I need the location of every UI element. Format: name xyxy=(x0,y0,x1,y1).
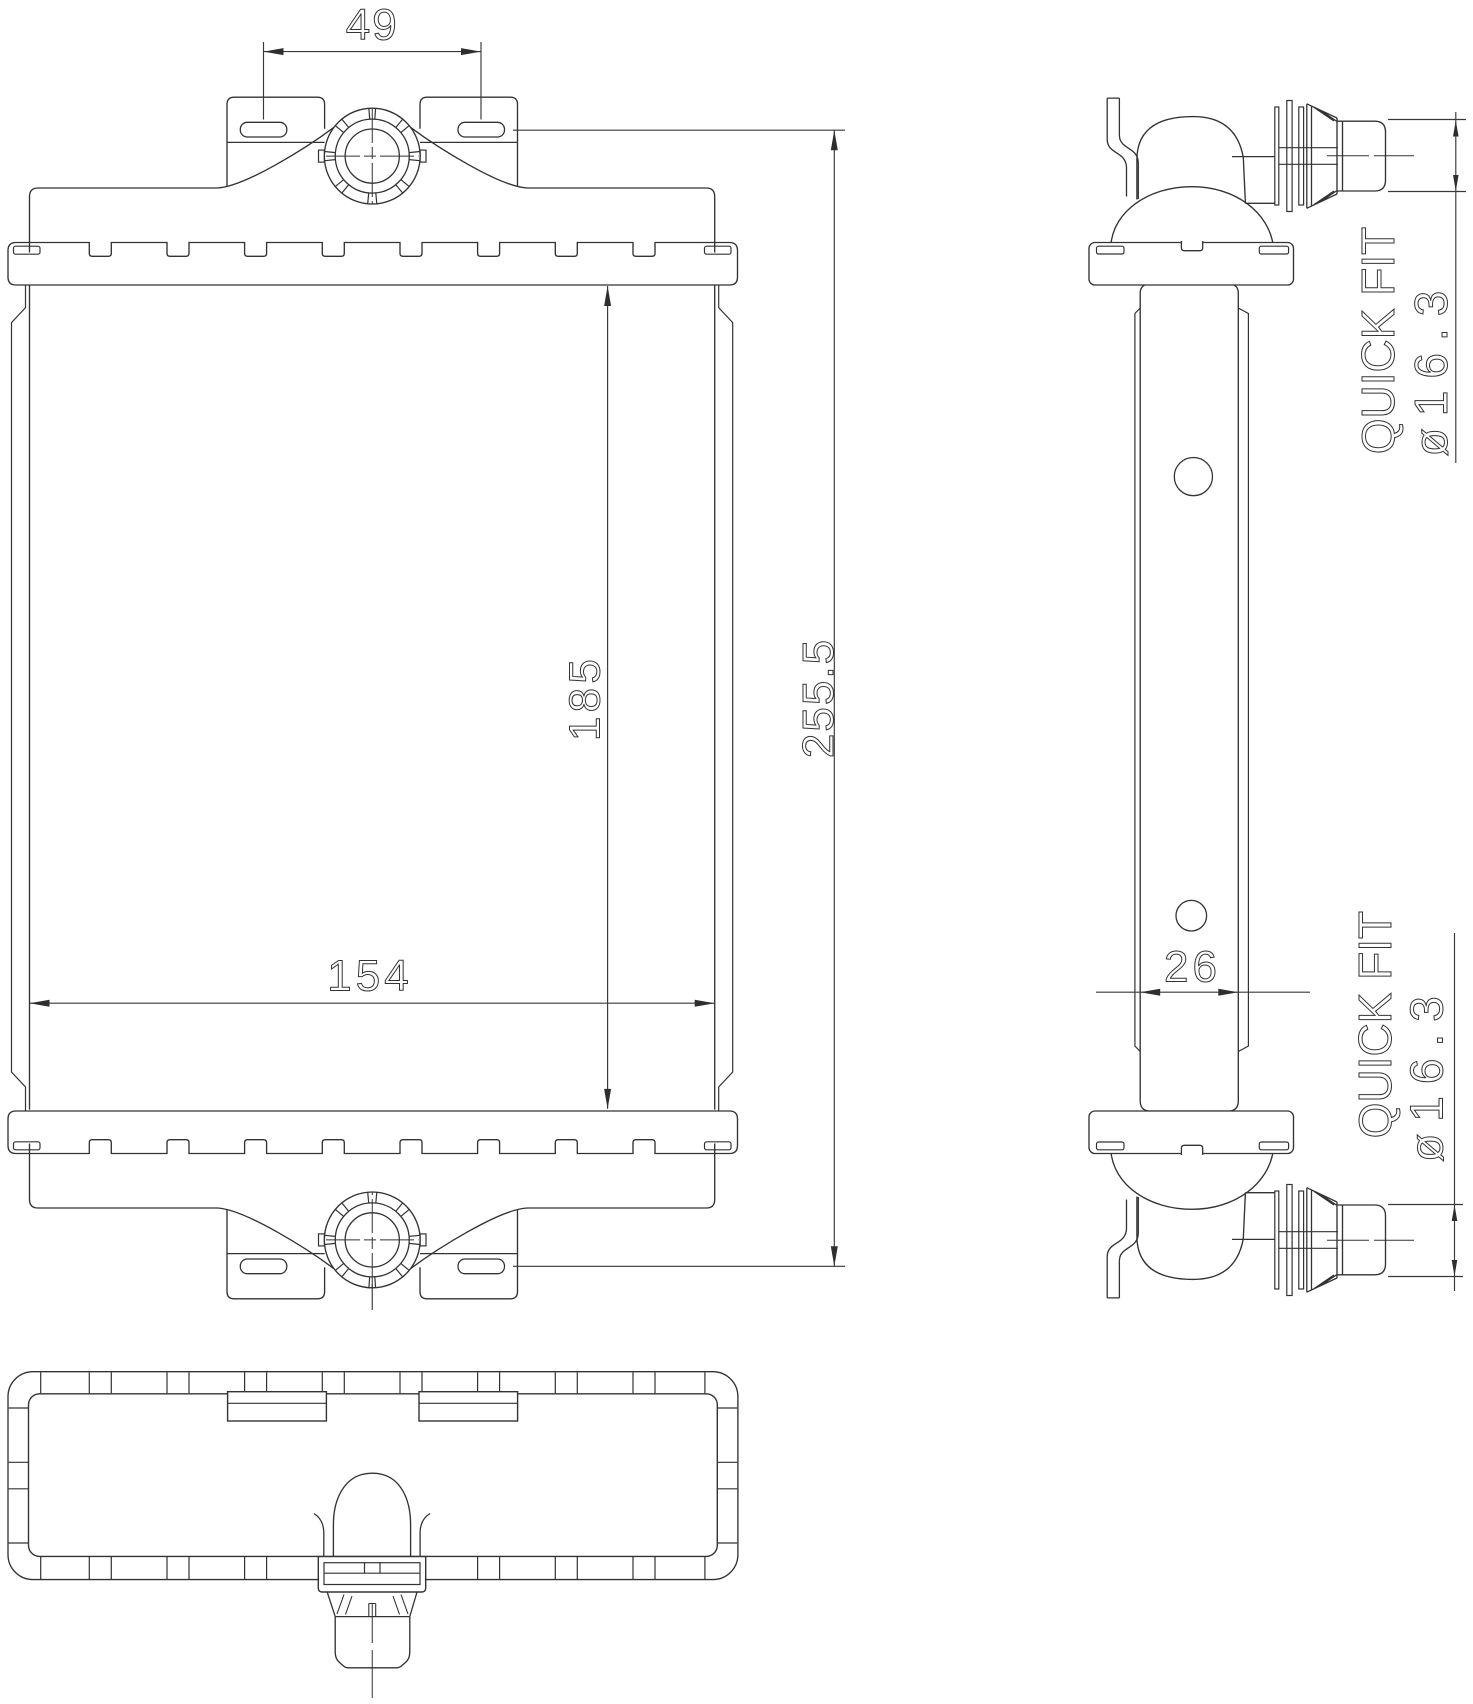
svg-text:QUICK FIT: QUICK FIT xyxy=(1352,227,1404,454)
svg-text:26: 26 xyxy=(1164,943,1221,992)
svg-text:QUICK FIT: QUICK FIT xyxy=(1349,911,1401,1138)
svg-text:49: 49 xyxy=(346,1,399,50)
svg-text:185: 185 xyxy=(561,655,610,741)
svg-text:255.5: 255.5 xyxy=(794,638,843,758)
svg-text:154: 154 xyxy=(327,952,412,1001)
svg-text:ø16.3: ø16.3 xyxy=(1405,279,1457,457)
svg-text:ø16.3: ø16.3 xyxy=(1401,984,1453,1162)
